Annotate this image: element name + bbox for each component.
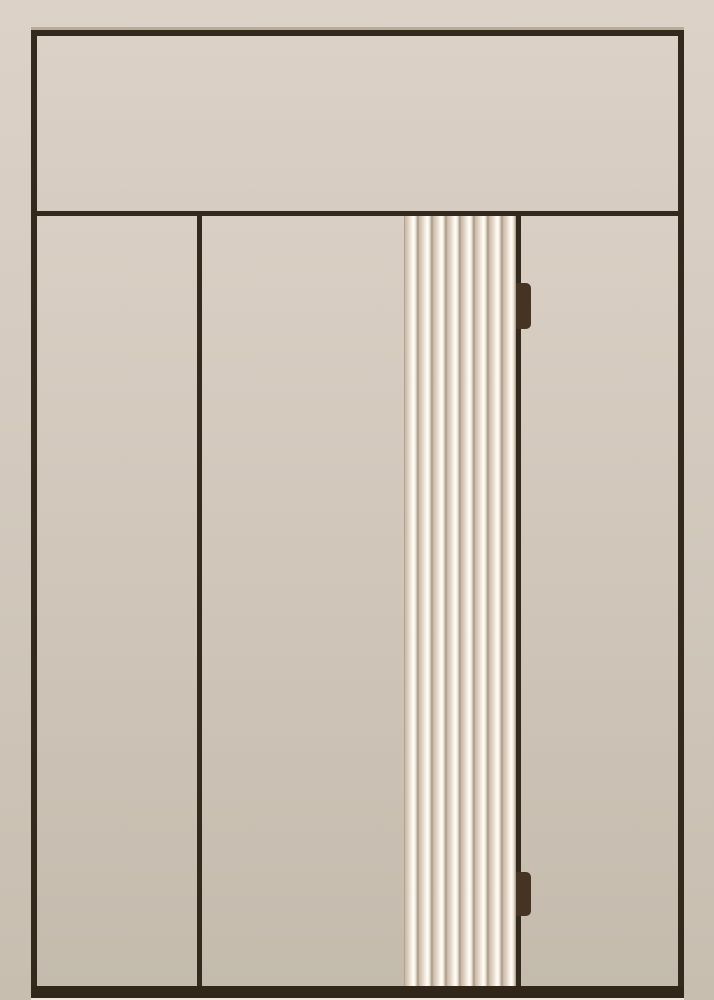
transom-panel (37, 36, 678, 211)
right-panel (521, 216, 678, 986)
transom-divider-line (31, 211, 684, 216)
flute-ridge (418, 216, 432, 986)
door-illustration (0, 0, 714, 1000)
flute-ridge (404, 216, 418, 986)
mullion-line (197, 211, 202, 986)
fluted-panel (404, 216, 516, 986)
frame-right-line (678, 30, 684, 998)
left-panel (37, 216, 197, 986)
flute-ridge (488, 216, 502, 986)
frame-left-line (31, 30, 37, 998)
flute-ridge (446, 216, 460, 986)
flute-ridge (432, 216, 446, 986)
flute-ridge (460, 216, 474, 986)
flute-ridge (502, 216, 516, 986)
middle-panel (202, 216, 404, 986)
frame-top-line (31, 30, 684, 36)
hinge-top (516, 283, 531, 329)
flute-ridge (474, 216, 488, 986)
bottom-threshold-bar (31, 986, 684, 998)
hinge-bottom (516, 872, 531, 916)
